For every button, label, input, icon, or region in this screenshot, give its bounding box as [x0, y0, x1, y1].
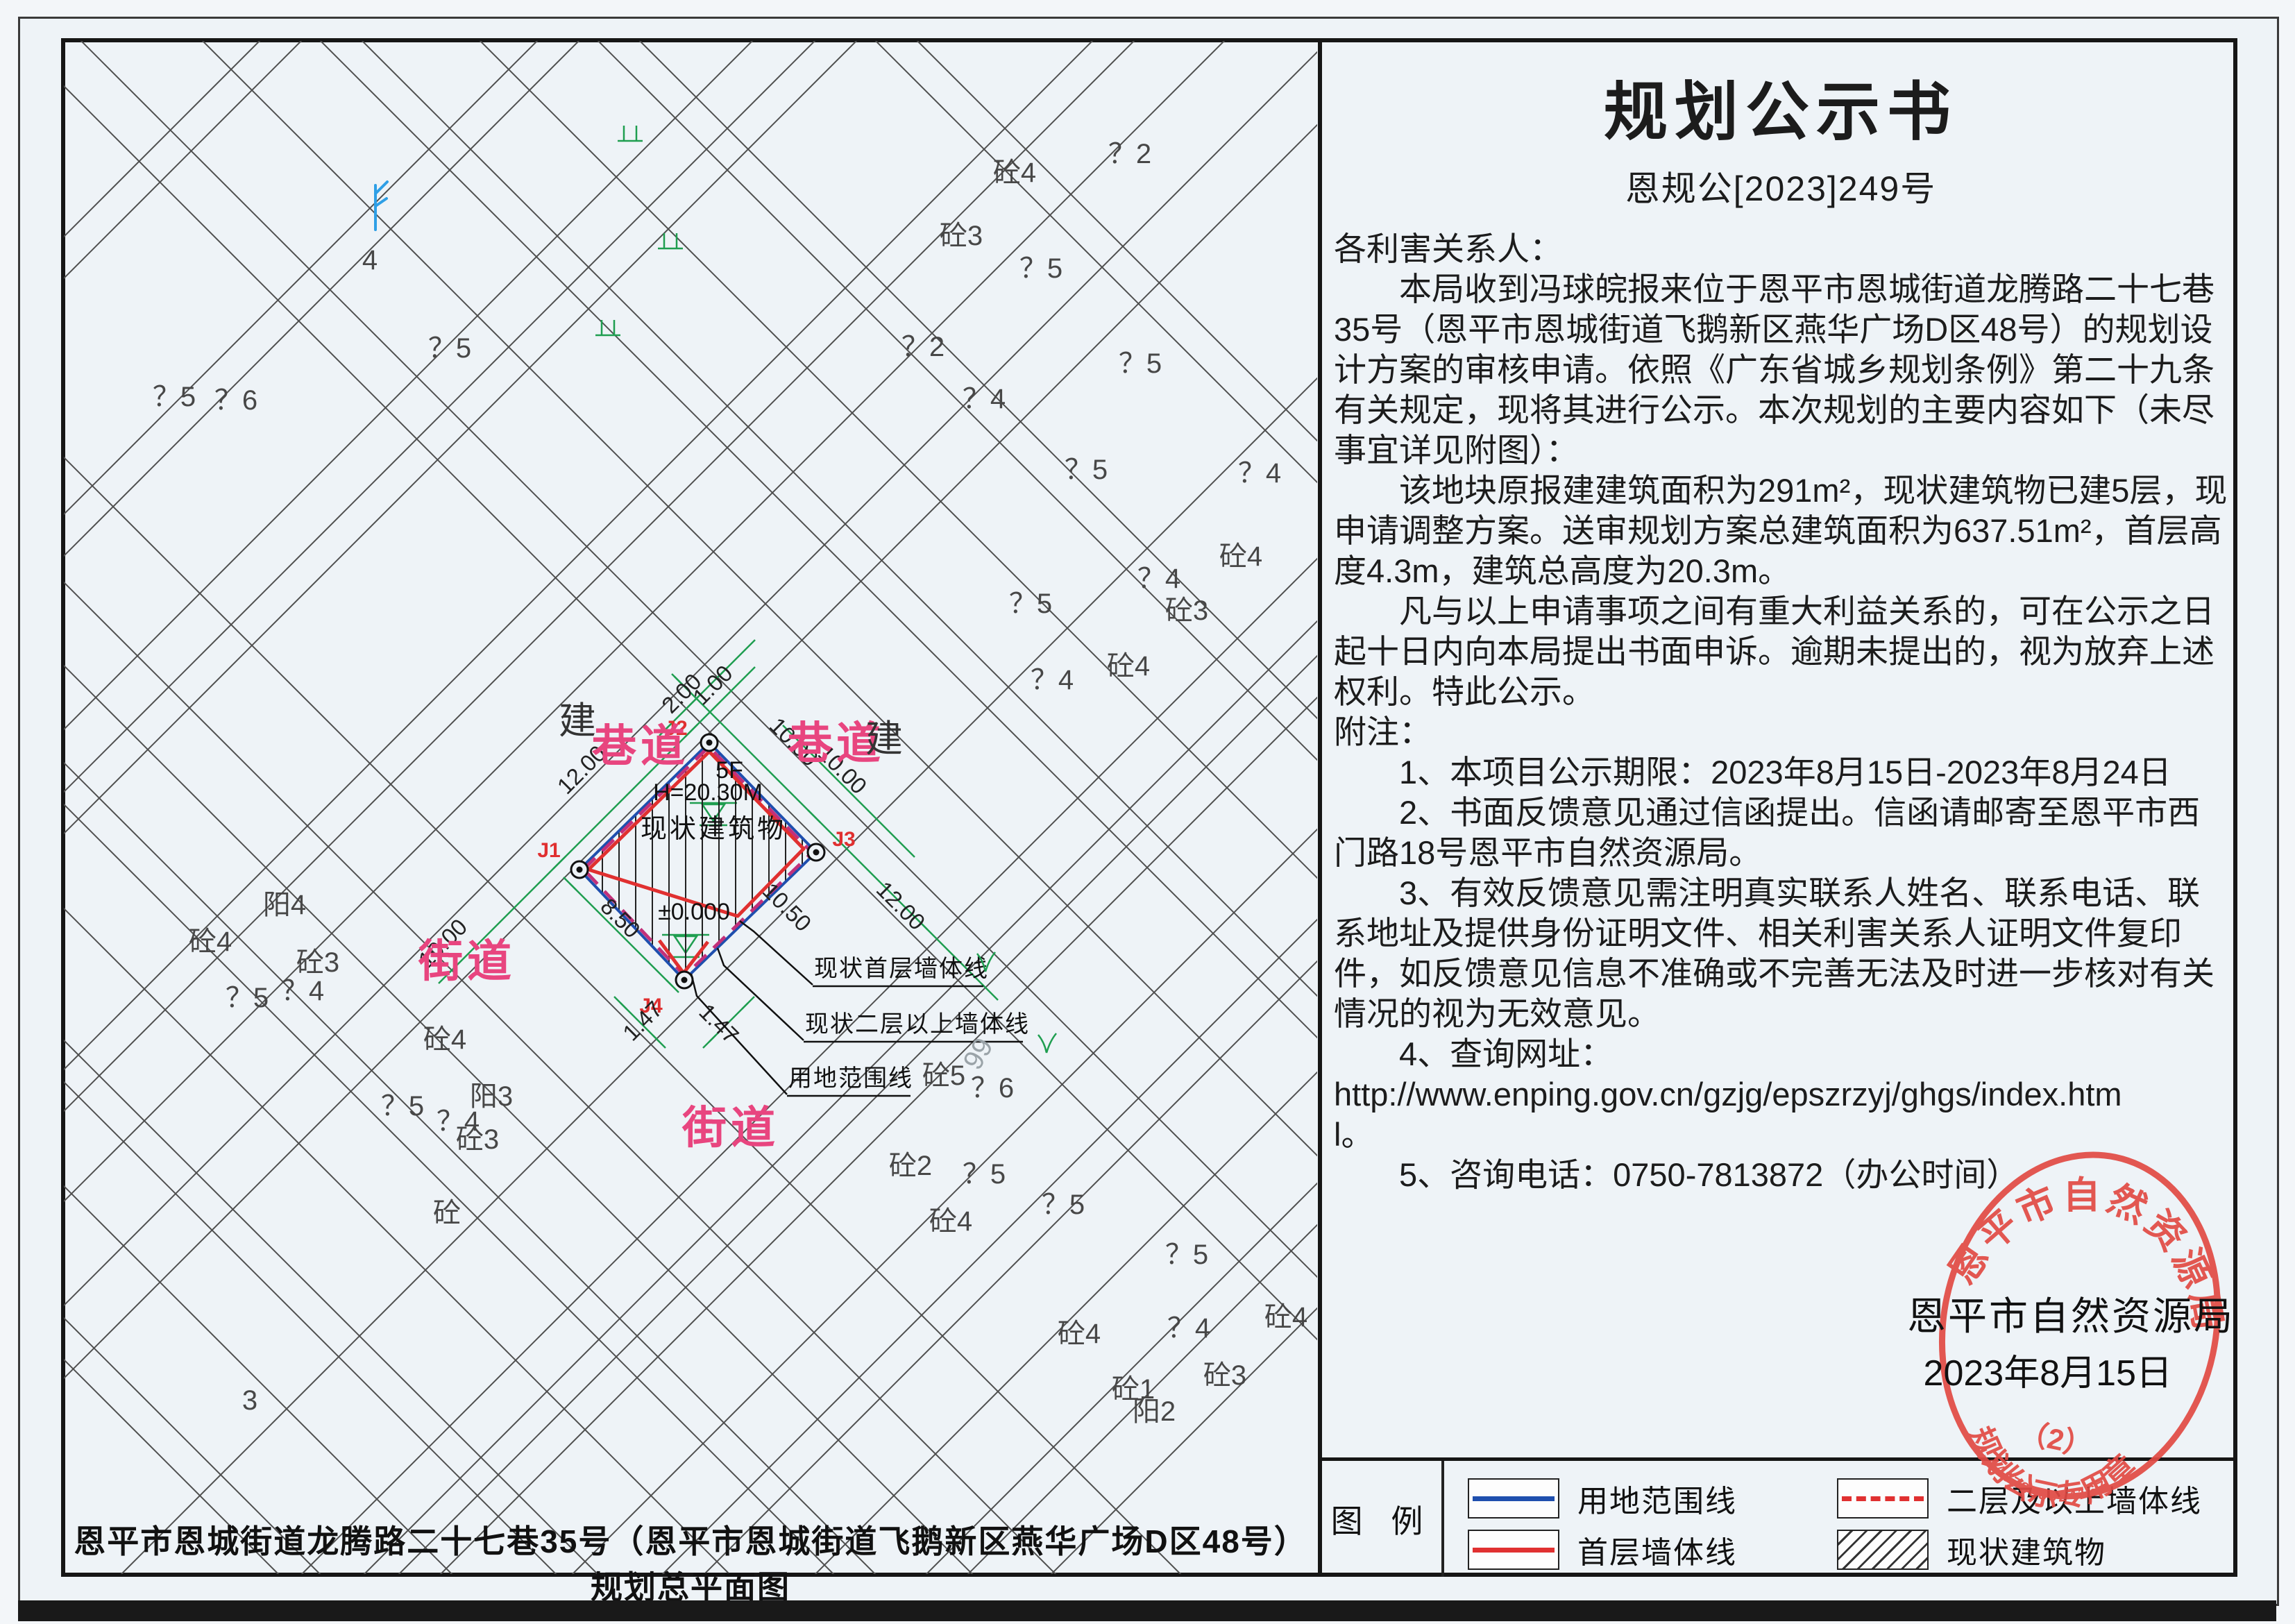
callout-label: 用地范围线	[788, 1065, 913, 1092]
tree-icon	[618, 126, 643, 141]
document-number: 恩规公[2023]249号	[1334, 161, 2228, 211]
parcel-label: ？5	[963, 1159, 1006, 1190]
street-name-label: 建	[559, 700, 596, 742]
parcel-label: ？5	[1042, 1190, 1085, 1220]
parcel-label: ？2	[901, 332, 945, 362]
legend-item: 现状建筑物	[1837, 1528, 2106, 1572]
page-title: 规划公示书	[1334, 60, 2228, 153]
tree-icon	[1038, 1033, 1056, 1053]
notice-body: 各利害关系人： 本局收到冯球皖报来位于恩平市恩城街道龙腾路二十七巷35号（恩平市…	[1334, 229, 2228, 1195]
parcel-label: ？5	[1165, 1240, 1208, 1270]
street-name-label: 巷道	[591, 721, 689, 771]
parcel-label: 砼2	[889, 1151, 932, 1181]
signature-org: 恩平市自然资源局	[1832, 1285, 2235, 1342]
note-item: 2、书面反馈意见通过信函提出。信函请邮寄至恩平市西门路18号恩平市自然资源局。	[1334, 793, 2228, 873]
parcel-label: ？5	[1009, 589, 1052, 619]
north-arrow-icon	[375, 182, 387, 230]
parcel-label: 砼3	[1203, 1360, 1246, 1391]
dimension-label: 12.00	[872, 877, 931, 936]
parcel-label: 砼	[433, 1198, 461, 1228]
parcel-label: ？6	[214, 385, 257, 416]
parcel-label: ？4	[963, 384, 1006, 414]
site-plan-map: 现状建筑物 5F H=20.30M ±0.000 J1J2J3J4 12.002…	[61, 38, 1320, 1577]
parcel-label: 阳2	[1133, 1396, 1176, 1427]
level-label: ±0.000	[658, 899, 730, 925]
paragraph: 本局收到冯球皖报来位于恩平市恩城街道龙腾路二十七巷35号（恩平市恩城街道飞鹅新区…	[1334, 269, 2228, 471]
parcel-label: 砼4	[1219, 541, 1262, 572]
corner-point-label: J1	[537, 839, 560, 862]
parcel-label: ？4	[1137, 564, 1180, 594]
notes-label: 附注：	[1334, 712, 2228, 752]
parcel-label: ？5	[1065, 455, 1108, 485]
height-label: H=20.30M	[653, 779, 763, 806]
legend-header: 图 例	[1322, 1461, 1444, 1577]
parcel-label: 砼4	[423, 1024, 466, 1055]
parcel-label: 3	[242, 1385, 257, 1416]
paragraph: 该地块原报建建筑面积为291m²，现状建筑物已建5层，现申请调整方案。送审规划方…	[1334, 471, 2228, 591]
parcel-label: ？5	[381, 1091, 424, 1122]
legend-swatch-hatch-icon	[1837, 1530, 1929, 1570]
parcel-label: 砼4	[993, 158, 1036, 188]
parcel-label: ？5	[1019, 253, 1062, 284]
callout-label: 现状首层墙体线	[814, 956, 989, 982]
scanned-planning-notice: 现状建筑物 5F H=20.30M ±0.000 J1J2J3J4 12.002…	[0, 0, 2295, 1624]
callout-label: 现状二层以上墙体线	[805, 1011, 1030, 1038]
legend-item: 用地范围线	[1468, 1476, 1737, 1521]
legend-label: 用地范围线	[1577, 1476, 1737, 1521]
street-name-label: 建	[865, 718, 903, 760]
parcel-label: 砼3	[940, 221, 983, 251]
dimension-label: 1.47	[694, 999, 744, 1049]
parcel-label: ？5	[226, 983, 269, 1013]
map-caption: 恩平市恩城街道龙腾路二十七巷35号（恩平市恩城街道飞鹅新区燕华广场D区48号）规…	[61, 1516, 1320, 1608]
parcel-label: ？4	[1031, 665, 1074, 695]
note-item: 4、查询网址：	[1334, 1034, 2228, 1074]
signature-date: 2023年8月15日	[1832, 1344, 2172, 1396]
parcel-label: 4	[362, 245, 378, 276]
parcel-label: ？2	[1108, 139, 1151, 169]
land-boundary-line	[579, 743, 816, 980]
street-name-label: 街道	[681, 1103, 779, 1153]
corner-point-label: J3	[832, 828, 855, 851]
salutation: 各利害关系人：	[1334, 229, 2228, 269]
notice-panel: 规划公示书 恩规公[2023]249号 各利害关系人： 本局收到冯球皖报来位于恩…	[1334, 52, 2228, 1195]
dimension-label: 10.50	[758, 878, 817, 937]
parcel-label: 砼4	[1264, 1302, 1307, 1333]
parcel-label: 阳4	[263, 890, 306, 920]
stamp-number: （2）	[2016, 1416, 2096, 1463]
scan-edge-artifact	[18, 1600, 2276, 1621]
parcel-label: ？5	[153, 382, 196, 412]
legend-swatch-blue-icon	[1468, 1478, 1559, 1519]
dimension-label: 1.00	[688, 660, 738, 710]
parcel-label: 砼5	[922, 1060, 965, 1091]
legend-swatch-redsolid-icon	[1468, 1530, 1559, 1570]
parcel-label: ？4	[281, 976, 324, 1006]
parcel-label: 砼4	[929, 1206, 972, 1237]
parcel-label: ？4	[1167, 1313, 1210, 1344]
parcel-label: ？6	[971, 1073, 1014, 1103]
paragraph: 凡与以上申请事项之间有重大利益关系的，可在公示之日起十日内向本局提出书面申诉。逾…	[1334, 591, 2228, 712]
building-label: 现状建筑物	[641, 815, 786, 844]
parcel-label: 砼3	[1165, 595, 1208, 626]
parcel-label: 砼3	[296, 947, 339, 978]
subject-plot: 现状建筑物 5F H=20.30M ±0.000	[571, 734, 824, 988]
parcel-label: ？5	[1119, 348, 1162, 379]
parcel-label: 砼4	[1058, 1319, 1101, 1349]
parcel-label: ？4	[1238, 458, 1281, 489]
note-item: 3、有效反馈意见需注明真实联系人姓名、联系电话、联系地址及提供身份证明文件、相关…	[1334, 873, 2228, 1034]
legend-label: 首层墙体线	[1577, 1528, 1737, 1572]
parcel-label: 砼3	[456, 1124, 499, 1155]
parcel-label: 砼4	[189, 927, 232, 957]
parcel-label: ？5	[428, 333, 471, 364]
street-name-label: 街道	[418, 936, 516, 986]
legend-item: 首层墙体线	[1468, 1528, 1737, 1572]
note-item: 1、本项目公示期限：2023年8月15日-2023年8月24日	[1334, 752, 2228, 793]
legend-label: 现状建筑物	[1947, 1528, 2106, 1572]
parcel-label: 砼4	[1107, 651, 1150, 682]
